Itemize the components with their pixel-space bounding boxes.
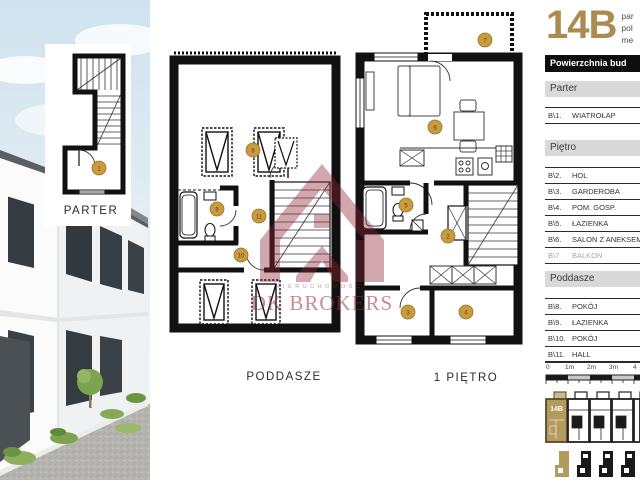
site-unit-label: 14B [550, 406, 563, 413]
unit-header: 14B par pol me [546, 4, 634, 46]
table-row: B\5. ŁAZIENKA [545, 215, 640, 231]
mini-unit-icons [545, 450, 640, 480]
table-row: B\2. HOL [545, 167, 640, 183]
svg-text:10: 10 [238, 254, 245, 260]
table-row: B\10. POKÓJ [545, 330, 640, 346]
table-title-bar: Powierzchnia bud [545, 55, 640, 72]
scale-ruler [545, 373, 640, 384]
separator-line [545, 361, 640, 363]
table-row: B\9. ŁAZIENKA [545, 314, 640, 330]
scale-label: 4 [633, 364, 637, 371]
unit-side-text: par pol me [621, 10, 633, 46]
parter-plan-card: 1 PARTER [45, 44, 131, 226]
section-pietro: Piętro [545, 140, 640, 156]
section-parter: Parter [545, 81, 640, 97]
table-row-balkon: B\7 BALKON [545, 247, 640, 264]
table-row: B\3. GARDEROBA [545, 183, 640, 199]
site-plan-row: 14B [545, 390, 640, 444]
section-poddasze: Poddasze [545, 271, 640, 287]
pietro-label: 1 PIĘTRO [434, 372, 498, 384]
rows-pietro: B\2. HOL B\3. GARDEROBA B\4. POM. GOSP. … [545, 167, 640, 264]
parter-label: PARTER [64, 205, 119, 217]
scale-label: 3m [609, 364, 618, 371]
svg-text:11: 11 [256, 215, 263, 221]
garage-door [0, 336, 30, 462]
scale-label: 0 [546, 364, 550, 371]
poddasze-floorplan: 8 9 11 10 PODDASZE [160, 40, 355, 390]
unit-number: 14B [546, 4, 616, 46]
rows-poddasze: B\8. POKÓJ B\9. ŁAZIENKA B\10. POKÓJ B\1… [545, 298, 640, 363]
mini-unit-highlight [555, 451, 569, 477]
side-fragment: par [621, 10, 633, 22]
scale-label: 1m [565, 364, 574, 371]
side-fragment: me [621, 34, 633, 46]
table-row: B\1. WIATROŁAP [545, 107, 640, 124]
table-row: B\8. POKÓJ [545, 298, 640, 314]
pietro-floorplan: 7 6 5 2 3 4 1 PIĘTRO [352, 0, 527, 392]
rows-parter: B\1. WIATROŁAP [545, 107, 640, 124]
poddasze-label: PODDASZE [246, 371, 321, 383]
legend-panel: 14B par pol me Powierzchnia bud Parter B… [545, 0, 640, 480]
scale-bar: 0 1m 2m 3m 4 [545, 364, 640, 384]
side-fragment: pol [621, 22, 633, 34]
balcony [426, 14, 512, 56]
parter-floorplan: 1 PARTER [45, 44, 131, 226]
scale-label: 2m [587, 364, 596, 371]
table-row: B\6. SALON Z ANEKSEM [545, 231, 640, 247]
table-row: B\4. POM. GOSP. [545, 199, 640, 215]
